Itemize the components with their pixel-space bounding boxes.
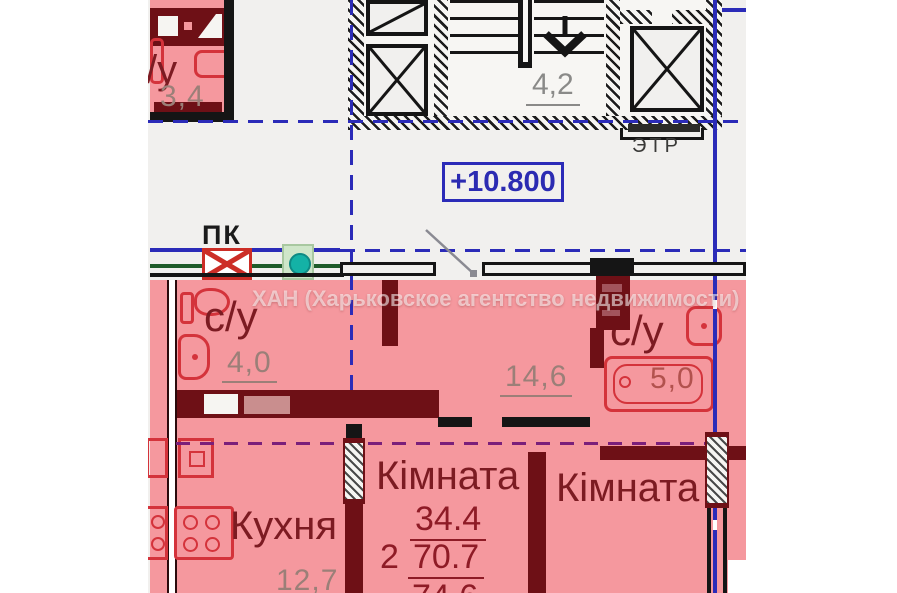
room1-label: Кімната (376, 456, 519, 496)
corner-cutout (728, 560, 746, 593)
burner (183, 515, 198, 530)
kitchen-room-wall (345, 504, 363, 593)
room-divider-wall (528, 452, 546, 593)
bath2-area: 5,0 (650, 364, 695, 394)
pk-riser-label: ПК (202, 222, 242, 249)
left-margin (0, 0, 148, 593)
burner (151, 537, 165, 551)
toilet-tank-icon (180, 292, 194, 324)
burner (205, 537, 220, 552)
washer-inner (189, 451, 205, 467)
axis-stub-top-right (722, 8, 746, 12)
burner (183, 537, 198, 552)
bathtub-drain (619, 376, 631, 388)
entrance-door-head (590, 258, 634, 276)
sink-dot (701, 323, 707, 329)
washer-icon-neighbor (146, 438, 168, 478)
stair-flight-left (450, 0, 518, 64)
kitchen-area: 12,7 (276, 566, 338, 593)
bath1-label: с/у (204, 296, 258, 338)
floor-plan-canvas: с/у 3,4 4,2 ЭТР +10.800 ПК (0, 0, 897, 593)
core-divider-wall-2 (606, 0, 620, 116)
sink-drain-dot (192, 354, 198, 360)
axis-line-horizontal-top (148, 120, 760, 123)
bath1-area: 4,0 (222, 348, 277, 383)
hall-wall-segment-2 (502, 417, 590, 427)
neighbor-bath-area: 3,4 (160, 82, 205, 112)
stove-icon (174, 506, 234, 560)
summary-total-area: 74.6 (412, 580, 478, 593)
wall-niche-small (184, 22, 192, 30)
elevator-room-label: ЭТР (632, 136, 681, 156)
elevator-x-icon (634, 30, 700, 108)
shaft-cell-bottom (366, 44, 428, 116)
top-wall-segment-1 (340, 262, 436, 276)
room2-label: Кімната (556, 468, 699, 508)
wall-opening (204, 394, 238, 414)
elevator-shaft (630, 26, 704, 112)
wall-stub (346, 424, 362, 438)
hall-wall-segment-1 (438, 417, 472, 427)
hall-area: 14,6 (500, 362, 572, 397)
elevation-value: +10.800 (450, 166, 556, 198)
burner (151, 515, 165, 529)
axis-segment-left (150, 248, 202, 252)
right-margin (746, 0, 897, 593)
window-column-left (343, 438, 365, 504)
stairs-down-arrow-icon (542, 16, 588, 64)
axis-tick-2 (713, 520, 717, 530)
shaft-diagonal-icon (370, 4, 424, 32)
burner (205, 515, 220, 530)
axis-line-purple (176, 442, 708, 445)
facade-wall-edge-2 (723, 508, 727, 593)
top-wall-left-line (150, 273, 344, 277)
bath2-partition-wall (590, 328, 604, 368)
elevator-door-gap (652, 10, 672, 24)
wall-casework (244, 396, 290, 414)
neighbor-right-wall (224, 0, 234, 122)
shaft-x-icon (370, 48, 424, 112)
window-column-right (705, 432, 729, 508)
facade-wall-edge-1 (707, 508, 711, 593)
teal-dot-icon (289, 253, 311, 275)
summary-rooms-count: 2 (380, 540, 399, 574)
core-divider-wall (434, 0, 448, 116)
summary-apartment-area: 70.7 (408, 540, 484, 579)
wall-niche (158, 16, 178, 36)
agency-watermark: ХАН (Харьковское агентство недвижимости) (252, 288, 740, 310)
stair-landing-area: 4,2 (526, 70, 580, 106)
kitchen-label: Кухня (230, 506, 337, 546)
elevation-mark-box: +10.800 (442, 162, 564, 202)
stair-stringer-gap (523, 0, 528, 62)
axis-line-horizontal-mid (340, 249, 746, 252)
shaft-cell-top (366, 0, 428, 36)
summary-living-area: 34.4 (410, 502, 486, 541)
